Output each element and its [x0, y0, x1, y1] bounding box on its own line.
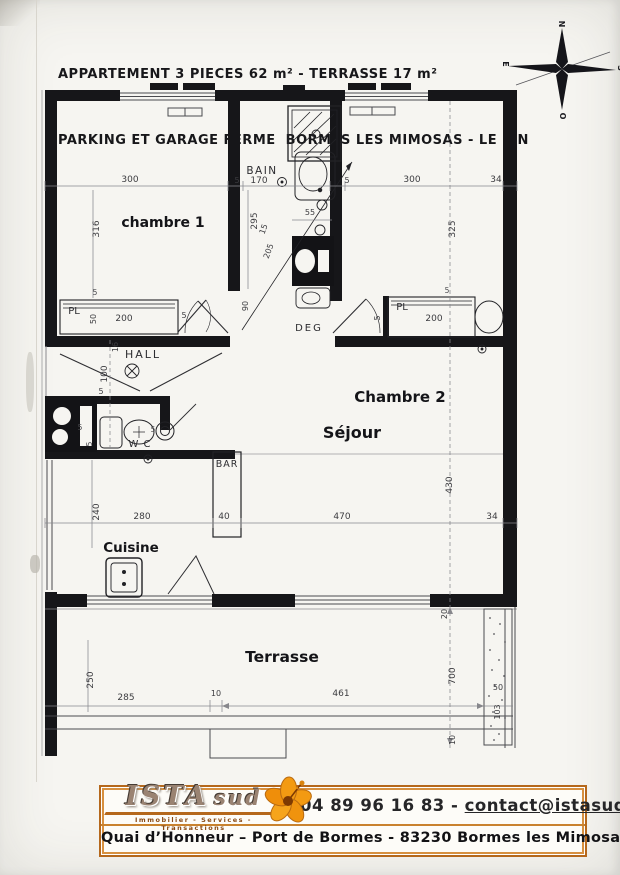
room-label-cuisine: Cuisine	[103, 540, 159, 556]
dim-c2-depth: 325	[448, 220, 458, 237]
dim-basin-width: 55	[305, 208, 315, 217]
dim-bar-width: 40	[218, 512, 230, 522]
dim-c1-width: 300	[121, 175, 138, 185]
scanned-floor-plan-page: APPARTEMENT 3 PIECES 62 m² - TERRASSE 17…	[0, 0, 620, 875]
dim-kitchen-width: 280	[133, 512, 150, 522]
compass-east-label: E	[501, 61, 510, 66]
agency-phone: 04 89 96 16 83	[300, 796, 445, 815]
compass-north-label: N	[557, 21, 566, 28]
dim-pl1-depth: 50	[89, 314, 98, 324]
dim-pl1-wall: 5	[181, 311, 186, 320]
dim-pl1-wall-b: 5	[93, 288, 98, 297]
dim-terrace-front: 461	[332, 689, 349, 699]
contact-separator: -	[451, 796, 458, 815]
room-label-terrasse: Terrasse	[245, 648, 319, 666]
dim-mid-wall-right: 34	[486, 512, 498, 522]
round-fixture	[475, 301, 503, 333]
room-label-sejour: Séjour	[323, 423, 381, 442]
dim-sejour-depth: 430	[445, 476, 455, 493]
dim-bain-diag: 205	[262, 242, 276, 259]
compass-rose-icon: N E S O	[501, 21, 620, 120]
dim-wall-20: 20	[440, 609, 449, 619]
room-label-placard2: PL	[396, 302, 408, 313]
dim-planter-width: 50	[493, 683, 503, 692]
dim-terrace-gap: 10	[211, 689, 221, 698]
compass-south-label: S	[616, 65, 620, 71]
dim-c1-depth: 316	[92, 220, 102, 237]
dim-hall-5: 5	[98, 387, 103, 396]
agency-tagline: Immobilier - Services - Transactions	[101, 816, 286, 832]
dim-wall-right: 34	[490, 175, 502, 185]
room-label-chambre1: chambre 1	[121, 215, 204, 231]
agency-contact-line: 04 89 96 16 83 - contact@istasud.com	[286, 796, 620, 815]
dim-bain-diag2: 15	[258, 223, 270, 236]
dim-c2-width: 300	[403, 175, 420, 185]
dim-wall-b: 5	[344, 176, 349, 185]
agency-logo-main: ISTA	[125, 781, 209, 812]
dim-hall-wall: 16	[111, 342, 120, 352]
dim-wc-5a: 5	[78, 423, 83, 432]
dim-edge-10: 10	[448, 735, 457, 745]
room-label-bar: BAR	[216, 459, 239, 470]
dim-planter-depth: 103	[493, 704, 502, 719]
agency-logo-sub: sud	[214, 785, 262, 810]
room-label-chambre2: Chambre 2	[354, 388, 445, 406]
hibiscus-flower-icon	[261, 771, 319, 825]
kitchen-fixtures	[106, 452, 241, 597]
dim-wc-5c: 5	[85, 441, 94, 446]
dim-pl1-width: 200	[115, 314, 132, 324]
dim-door-c1: 90	[241, 301, 250, 311]
room-label-hall: HALL	[125, 348, 161, 361]
agency-logo: ISTA sud Immobilier - Services - Transac…	[101, 779, 286, 832]
dim-kitchen-height: 240	[92, 503, 102, 520]
dim-wc-5b: 5	[151, 425, 156, 434]
dim-pl2-wall: 5	[373, 315, 382, 320]
floor-plan: N E S O	[0, 0, 620, 875]
planter-fixture	[488, 617, 506, 741]
room-label-deg: DEG	[295, 323, 323, 334]
compass-west-label: O	[558, 113, 567, 120]
dim-total-height: 700	[448, 667, 458, 684]
logo-underline	[104, 812, 283, 815]
agency-email: contact@istasud.com	[465, 796, 620, 815]
dim-sejour-width: 470	[333, 512, 350, 522]
dim-bain-depth: 295	[250, 212, 260, 229]
dim-wall-a: 5	[234, 176, 239, 185]
agency-banner: ISTA sud Immobilier - Services - Transac…	[99, 785, 587, 857]
dim-terrace-left: 285	[117, 693, 134, 703]
dim-bain-width: 170	[250, 176, 267, 186]
agency-banner-top: ISTA sud Immobilier - Services - Transac…	[101, 787, 585, 826]
dim-pl2-width: 200	[425, 314, 442, 324]
room-label-wc: W C	[128, 439, 151, 450]
dim-terrace-depth: 250	[86, 671, 96, 688]
room-label-placard1: PL	[68, 306, 80, 317]
dim-hall-height: 100	[100, 365, 110, 382]
dim-pl2-wall-b: 5	[445, 286, 450, 295]
